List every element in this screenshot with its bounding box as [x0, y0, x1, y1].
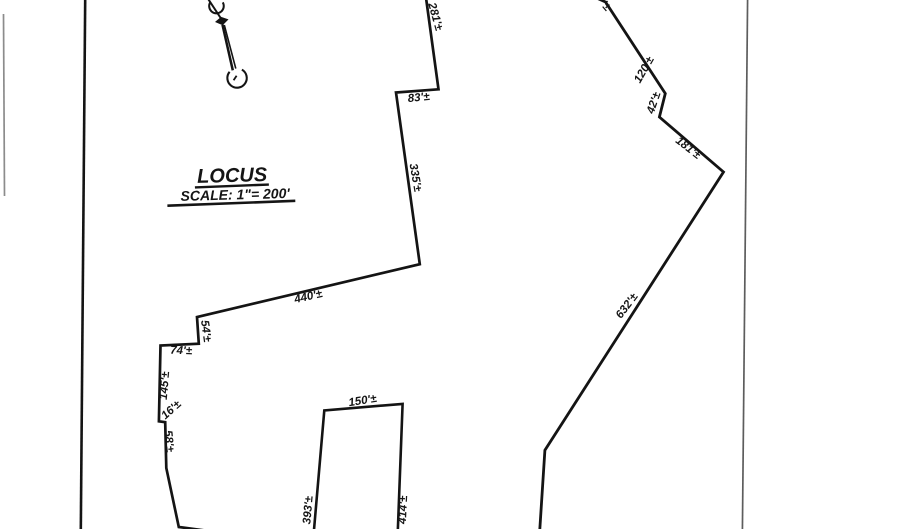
svg-text:393'±: 393'±	[301, 495, 315, 525]
svg-text:58'±: 58'±	[161, 430, 175, 454]
svg-text:83'±: 83'±	[407, 91, 431, 105]
svg-text:145'±: 145'±	[158, 370, 172, 400]
svg-text:414'±: 414'±	[397, 495, 411, 526]
svg-text:74'±: 74'±	[170, 345, 193, 358]
